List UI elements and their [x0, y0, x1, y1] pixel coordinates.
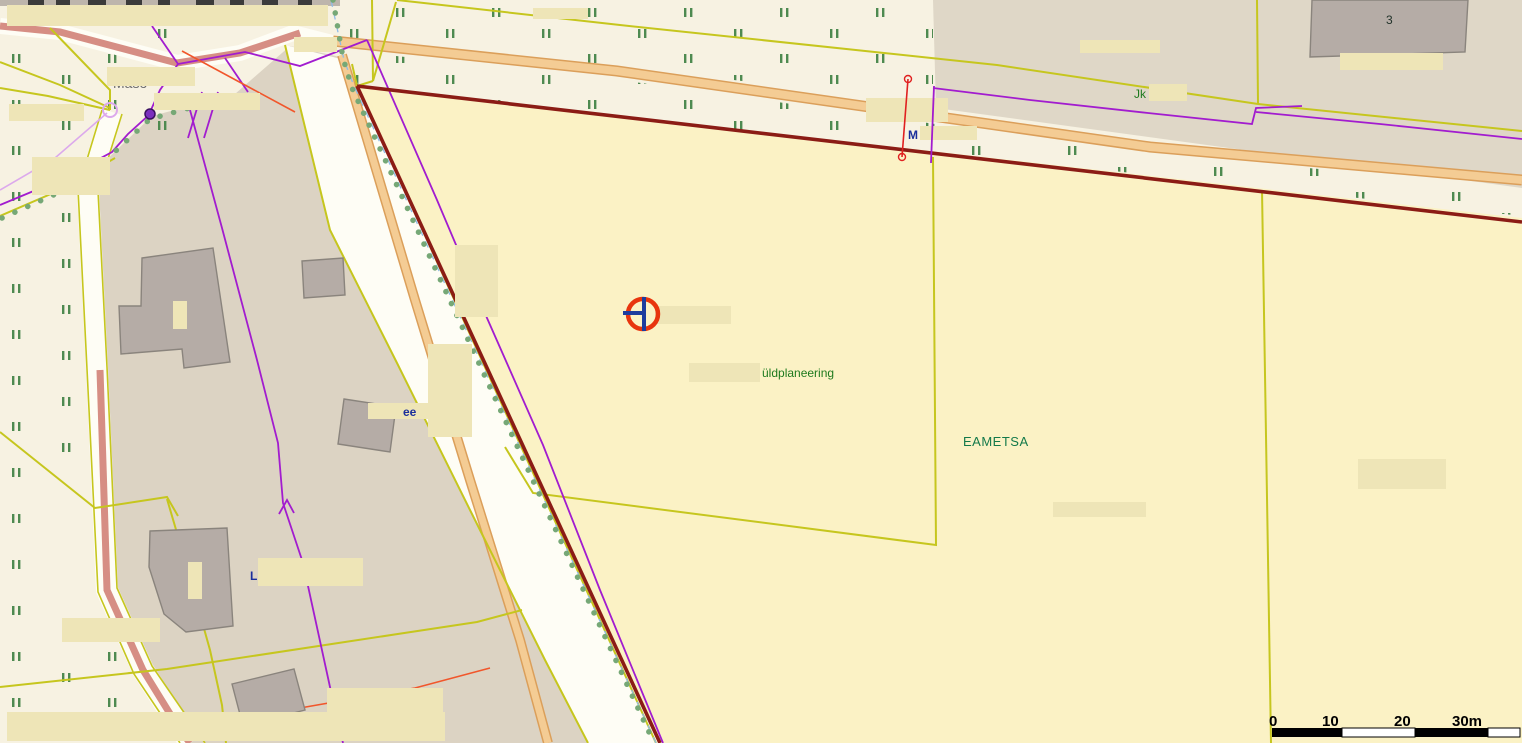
planning-note-label: üldplaneering	[762, 366, 834, 380]
area-name-label: EAMETSA	[963, 434, 1029, 449]
jk-label: Jk	[1134, 87, 1147, 101]
utility-node-dot	[145, 109, 155, 119]
street-fragment-label: ee	[403, 405, 417, 419]
scale-tick-20: 20	[1394, 713, 1411, 730]
map-viewport[interactable]: Maso üldplaneering	[0, 0, 1522, 743]
building-number-label: 3	[1386, 13, 1393, 27]
l-fragment-label: L	[250, 569, 257, 583]
map-canvas[interactable]: Maso üldplaneering	[0, 0, 1522, 743]
scale-tick-10: 10	[1322, 713, 1339, 730]
scale-tick-0: 0	[1269, 713, 1277, 730]
building-small-mid	[302, 258, 345, 298]
scale-tick-30m: 30m	[1452, 713, 1482, 730]
m-fragment-label: M	[908, 128, 918, 142]
label-box-coords	[7, 5, 328, 26]
building-3	[1310, 0, 1468, 57]
